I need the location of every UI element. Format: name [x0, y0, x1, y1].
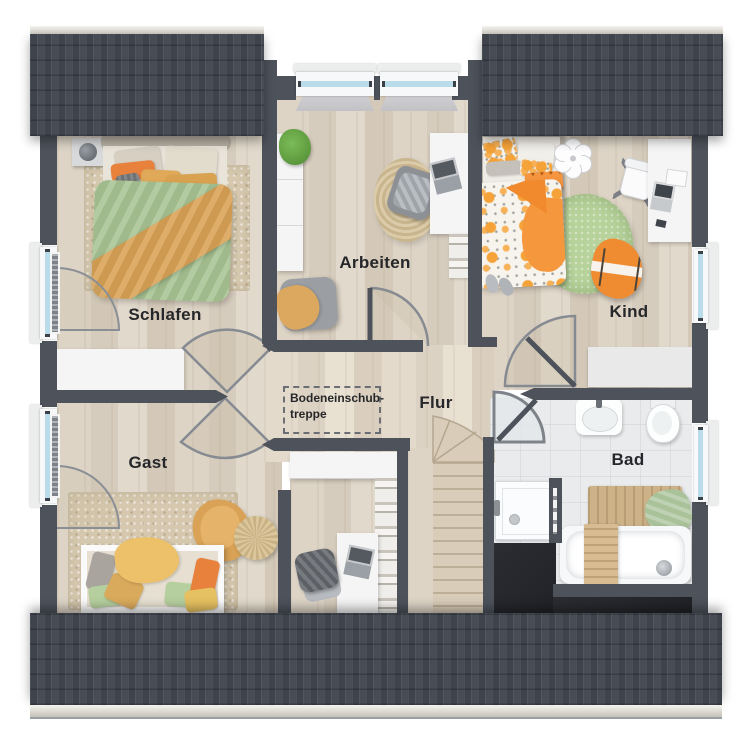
chimney-cap-circle [79, 143, 97, 161]
dormer-wall [277, 76, 296, 100]
towel-rail [553, 488, 557, 534]
duvet-fold-shading [91, 180, 233, 303]
washbasin [576, 398, 622, 435]
exterior-wall-left [40, 505, 57, 615]
kind-window [694, 249, 708, 323]
shower-drain [509, 514, 520, 525]
wall-kind-bad [520, 388, 692, 400]
shower-tray-inner [502, 488, 553, 535]
shower-partition-wall [549, 478, 562, 543]
desk-printer [665, 169, 688, 188]
double-bed [101, 134, 229, 298]
window-glass [298, 81, 372, 87]
floorplan-canvas: Schlafen Arbeiten Kind Gast Flur Bad Bod… [0, 0, 750, 750]
room-label-flur: Flur [419, 393, 452, 413]
schlafen-radiator [50, 252, 60, 334]
exterior-wall-right [692, 502, 708, 615]
roof-bottom [30, 613, 722, 705]
wall-schlafen-arbeiten [262, 60, 277, 352]
toilet-seat [652, 411, 672, 435]
toilet [644, 398, 680, 442]
bookshelf [375, 478, 398, 613]
attic-ladder-line2: treppe [290, 407, 327, 421]
wall-stair-east [483, 437, 494, 613]
room-label-kind: Kind [610, 302, 649, 322]
kids-bed [479, 133, 564, 290]
yellow-pillow [184, 587, 219, 613]
stair-landing-strip [407, 448, 435, 613]
wall-stair-west [397, 438, 408, 613]
room-label-schlafen: Schlafen [128, 305, 201, 325]
tub-faucet [656, 560, 672, 576]
roof-top-right [482, 34, 723, 136]
kind-sideboard [588, 347, 692, 387]
window-glass [382, 81, 456, 87]
attic-ladder-annotation: Bodeneinschub- treppe [283, 386, 381, 434]
armchair [279, 276, 338, 332]
wall-flur-worknook [262, 438, 410, 451]
gast-radiator [50, 414, 60, 498]
roof-ridge-cap [30, 705, 722, 719]
schlafen-sideboard [57, 349, 184, 390]
basin-bowl [582, 406, 618, 432]
room-label-bad: Bad [611, 450, 644, 470]
bathtub [560, 526, 691, 584]
exterior-wall-right [692, 323, 708, 423]
window-glass [698, 251, 703, 321]
green-duvet [91, 180, 233, 303]
potted-plant [279, 129, 311, 165]
window-reveal [380, 96, 458, 111]
attic-ladder-line1: Bodeneinschub- [290, 391, 384, 405]
arbeiten-window-right [380, 72, 458, 96]
chimney-block [72, 138, 104, 166]
jute-pouf [234, 516, 278, 560]
window-reveal [296, 96, 374, 111]
wall-arbeiten-kind [468, 60, 482, 345]
bath-caddy-tray [584, 524, 618, 586]
bean-bag-string [598, 248, 641, 291]
polka-duvet [471, 179, 566, 290]
window-glass [698, 427, 703, 500]
exterior-wall-left [40, 133, 57, 245]
wall-kind-cap [468, 337, 497, 347]
gray-bolster [486, 160, 523, 176]
bathroom-south-wall [553, 584, 692, 597]
exterior-wall-right [692, 133, 708, 247]
flur-cabinet [290, 452, 397, 479]
wall-gast-worknook [278, 490, 291, 613]
wall-arbeiten-flur [262, 340, 423, 352]
roof-top-left [30, 34, 264, 136]
bad-window [694, 425, 708, 502]
eaves-void [494, 543, 556, 613]
guest-daybed [81, 545, 224, 613]
room-label-gast: Gast [129, 453, 168, 473]
laptop-keyboard [650, 197, 673, 212]
wall-schlafen-gast [40, 390, 228, 403]
shower-faucet [494, 500, 500, 516]
room-label-arbeiten: Arbeiten [339, 253, 410, 273]
arbeiten-window-left [296, 72, 374, 96]
eaves-void [553, 595, 692, 613]
